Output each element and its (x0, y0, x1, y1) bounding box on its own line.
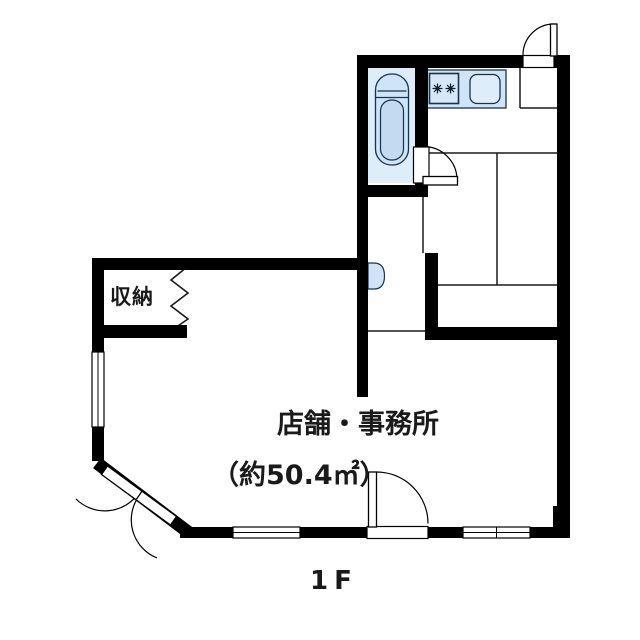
bottom-window-left (233, 527, 300, 538)
washbasin-icon (368, 263, 385, 289)
shop-office-area-label: （約50.4㎡） (212, 462, 387, 489)
tatami-bottom-wall (425, 327, 570, 340)
bathroom-bottom-wall (357, 185, 428, 197)
bathroom (368, 68, 415, 183)
corridor-right-wall (425, 253, 438, 340)
storage-bottom-wall (92, 325, 187, 338)
open-closet-zigzag-icon (171, 267, 188, 330)
back-entry-door (523, 24, 557, 68)
bottom-wall-seg2 (300, 527, 367, 538)
bottom-wall-seg4 (530, 527, 570, 538)
kitchen (425, 70, 506, 108)
bottom-window-right (463, 527, 530, 538)
shop-office-room-label: 店舗・事務所 (277, 411, 439, 438)
top-wall-left (357, 55, 523, 68)
kitchen-sink-icon (470, 75, 500, 104)
floorplan-page: 収納 店舗・事務所 （約50.4㎡） 1F (0, 0, 640, 640)
storage-top-wall (92, 258, 368, 270)
back-entry-door-leaf (551, 24, 558, 56)
back-entry-door-swing-arc (523, 24, 554, 55)
bathroom-right-wall-upper (415, 55, 428, 147)
entrance-left-swing-arc (76, 494, 138, 511)
entrance-double-door (76, 466, 177, 558)
bathtub-icon (376, 74, 409, 165)
back-entry-door-frame (523, 56, 554, 68)
bottom-wall-seg3 (428, 527, 463, 538)
right-wall (557, 55, 570, 538)
shop-side-door-frame (367, 527, 428, 539)
right-wall-pillar (553, 506, 570, 527)
left-window (92, 352, 104, 427)
floor-number-label: 1F (310, 568, 358, 594)
storage-room-label: 収納 (110, 287, 154, 308)
bathroom-left-wall (357, 55, 368, 397)
left-wall-lower (92, 427, 104, 461)
bathroom-door-leaf (423, 177, 458, 186)
floorplan-drawing (0, 0, 640, 640)
